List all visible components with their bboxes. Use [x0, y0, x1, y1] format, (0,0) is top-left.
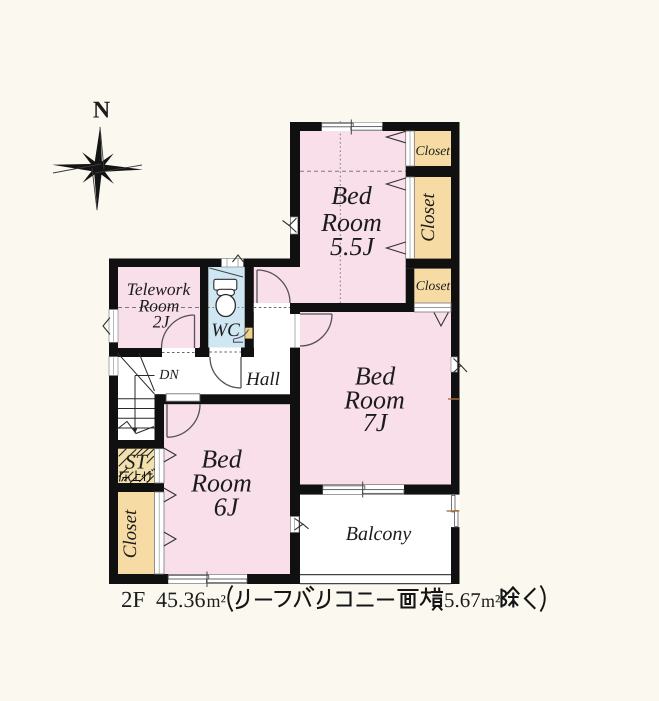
svg-text:7J: 7J	[363, 408, 389, 437]
svg-text:WC: WC	[211, 320, 240, 341]
svg-text:Balcony: Balcony	[346, 523, 412, 545]
svg-text:5.67: 5.67	[444, 588, 481, 612]
svg-text:N: N	[93, 98, 111, 124]
svg-text:ST: ST	[125, 450, 149, 474]
svg-text:Closet: Closet	[416, 143, 452, 158]
svg-text:Closet: Closet	[418, 193, 439, 242]
svg-text:6J: 6J	[214, 493, 240, 522]
svg-text:Hall: Hall	[245, 369, 280, 390]
svg-text:45.36: 45.36	[156, 587, 206, 612]
svg-text:2F: 2F	[121, 587, 145, 612]
svg-text:Closet: Closet	[120, 509, 141, 558]
svg-text:m²: m²	[207, 591, 226, 611]
svg-text:Closet: Closet	[416, 278, 452, 293]
svg-text:2J: 2J	[153, 312, 171, 332]
svg-text:DN: DN	[158, 368, 179, 383]
svg-text:5.5J: 5.5J	[330, 232, 376, 261]
svg-text:m²: m²	[481, 591, 500, 611]
svg-text:Bed: Bed	[331, 181, 372, 210]
